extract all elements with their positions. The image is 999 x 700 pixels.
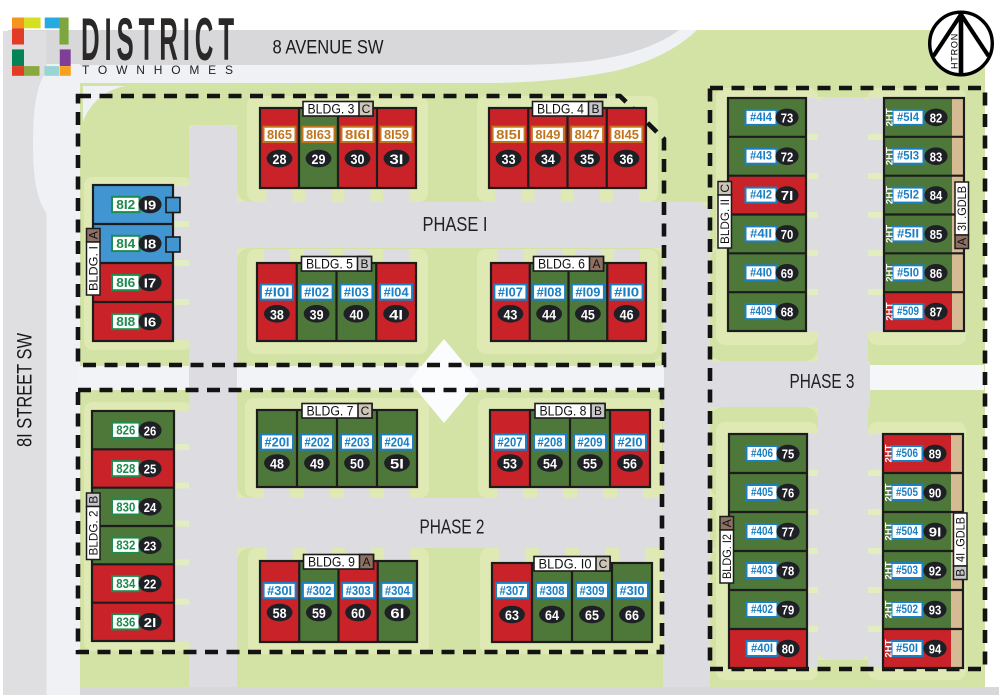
svg-text:#504: #504 xyxy=(896,526,919,538)
svg-text:TOWNHOMES: TOWNHOMES xyxy=(82,63,233,77)
svg-text:59: 59 xyxy=(312,605,326,621)
svg-text:70: 70 xyxy=(781,227,794,242)
svg-text:2HT: 2HT xyxy=(884,639,895,657)
svg-text:8I65: 8I65 xyxy=(267,128,292,142)
svg-text:BLDG. 3: BLDG. 3 xyxy=(308,102,355,117)
svg-text:#402: #402 xyxy=(751,604,773,616)
svg-text:8I8: 8I8 xyxy=(116,315,135,329)
svg-text:50: 50 xyxy=(350,456,364,472)
svg-text:79: 79 xyxy=(782,603,795,618)
svg-text:60: 60 xyxy=(351,605,365,621)
svg-text:8I4: 8I4 xyxy=(116,237,135,251)
svg-text:64: 64 xyxy=(545,607,559,623)
svg-text:#404: #404 xyxy=(751,526,774,538)
svg-text:#302: #302 xyxy=(306,584,331,598)
svg-text:#5I3: #5I3 xyxy=(897,151,919,163)
svg-text:38: 38 xyxy=(270,306,284,322)
svg-text:828: 828 xyxy=(116,462,135,476)
svg-text:23: 23 xyxy=(144,538,157,553)
svg-text:A: A xyxy=(955,238,969,246)
svg-text:43: 43 xyxy=(503,306,517,322)
svg-text:36: 36 xyxy=(619,151,633,167)
svg-text:85: 85 xyxy=(930,227,943,242)
svg-text:#30I: #30I xyxy=(267,584,292,598)
svg-text:B: B xyxy=(86,496,100,504)
svg-text:B: B xyxy=(360,257,368,271)
svg-text:BLDG. I: BLDG. I xyxy=(86,246,100,291)
svg-text:82: 82 xyxy=(930,111,943,126)
svg-text:#303: #303 xyxy=(346,584,371,598)
svg-text:89: 89 xyxy=(929,447,942,462)
svg-text:I6: I6 xyxy=(144,315,157,330)
svg-text:63: 63 xyxy=(505,607,519,623)
svg-text:84: 84 xyxy=(930,188,943,203)
svg-text:2HT: 2HT xyxy=(885,302,896,320)
svg-text:44: 44 xyxy=(542,306,556,322)
svg-text:#I02: #I02 xyxy=(304,286,329,300)
svg-text:2HT: 2HT xyxy=(884,561,895,579)
svg-text:28: 28 xyxy=(273,151,287,167)
svg-text:C: C xyxy=(362,102,371,116)
svg-text:#204: #204 xyxy=(385,436,410,450)
svg-text:94: 94 xyxy=(929,642,942,657)
svg-text:#I03: #I03 xyxy=(344,286,369,300)
svg-text:2HT: 2HT xyxy=(884,444,895,462)
svg-text:49: 49 xyxy=(310,456,324,472)
svg-text:5I: 5I xyxy=(390,456,404,472)
svg-text:BLDG. I0: BLDG. I0 xyxy=(539,557,592,572)
svg-text:826: 826 xyxy=(116,424,135,438)
svg-text:77: 77 xyxy=(782,525,795,540)
svg-text:A: A xyxy=(362,555,370,569)
svg-text:PHASE 3: PHASE 3 xyxy=(790,370,855,393)
svg-text:40: 40 xyxy=(349,306,363,322)
svg-text:BLDG. 5: BLDG. 5 xyxy=(306,257,353,272)
svg-text:#203: #203 xyxy=(345,436,370,450)
svg-text:BLDG. 8: BLDG. 8 xyxy=(540,404,587,419)
svg-text:#40I: #40I xyxy=(751,643,773,655)
svg-text:#208: #208 xyxy=(538,436,563,450)
svg-text:9I: 9I xyxy=(929,525,942,540)
svg-text:30: 30 xyxy=(351,151,365,167)
svg-text:93: 93 xyxy=(929,603,942,618)
svg-text:34: 34 xyxy=(541,151,555,167)
svg-text:4I: 4I xyxy=(389,306,403,322)
svg-text:2I: 2I xyxy=(144,615,157,630)
svg-text:I8: I8 xyxy=(144,237,157,252)
svg-text:#3I0: #3I0 xyxy=(620,584,645,598)
svg-text:55: 55 xyxy=(583,456,597,472)
svg-text:2HT: 2HT xyxy=(885,225,896,243)
svg-text:#307: #307 xyxy=(500,584,525,598)
svg-text:66: 66 xyxy=(625,607,639,623)
svg-text:#5I2: #5I2 xyxy=(897,190,919,202)
svg-text:72: 72 xyxy=(781,149,794,164)
svg-text:2HT: 2HT xyxy=(885,186,896,204)
svg-text:A: A xyxy=(592,257,600,271)
svg-text:76: 76 xyxy=(782,486,795,501)
svg-text:8I47: 8I47 xyxy=(575,128,600,142)
svg-text:24: 24 xyxy=(144,500,157,515)
svg-text:C: C xyxy=(599,557,608,571)
svg-text:B: B xyxy=(591,102,599,116)
svg-text:83: 83 xyxy=(930,149,943,164)
svg-text:80: 80 xyxy=(782,642,795,657)
svg-text:#309: #309 xyxy=(580,584,605,598)
svg-text:8I5I: 8I5I xyxy=(496,128,521,142)
svg-text:834: 834 xyxy=(116,577,135,591)
svg-text:33: 33 xyxy=(502,151,516,167)
svg-text:C: C xyxy=(718,184,732,193)
svg-text:39: 39 xyxy=(310,306,324,322)
svg-text:8I STREET SW: 8I STREET SW xyxy=(14,333,37,447)
svg-text:2HT: 2HT xyxy=(884,522,895,540)
svg-text:46: 46 xyxy=(620,306,634,322)
svg-text:#4I3: #4I3 xyxy=(750,151,772,163)
svg-text:#308: #308 xyxy=(540,584,565,598)
svg-text:BLDG. 7: BLDG. 7 xyxy=(307,404,354,419)
svg-text:B: B xyxy=(594,404,602,418)
svg-text:#207: #207 xyxy=(498,436,523,450)
svg-text:8I59: 8I59 xyxy=(384,128,409,142)
svg-text:832: 832 xyxy=(116,539,135,553)
svg-text:#406: #406 xyxy=(751,448,773,460)
svg-text:#5I0: #5I0 xyxy=(897,267,919,279)
svg-text:#5II: #5II xyxy=(897,228,919,240)
svg-text:#4I4: #4I4 xyxy=(750,112,773,124)
svg-text:I9: I9 xyxy=(144,198,157,213)
svg-text:#50I: #50I xyxy=(896,643,918,655)
svg-text:8I2: 8I2 xyxy=(116,198,135,212)
svg-text:75: 75 xyxy=(782,447,795,462)
svg-text:830: 830 xyxy=(116,500,135,514)
svg-text:BLDG. 6: BLDG. 6 xyxy=(538,257,585,272)
svg-text:8I49: 8I49 xyxy=(535,128,560,142)
svg-text:#405: #405 xyxy=(751,487,774,499)
svg-text:#202: #202 xyxy=(305,436,330,450)
svg-text:54: 54 xyxy=(543,456,557,472)
svg-text:A: A xyxy=(720,519,734,527)
svg-text:48: 48 xyxy=(270,456,284,472)
svg-text:#502: #502 xyxy=(896,604,918,616)
svg-text:8 AVENUE SW: 8 AVENUE SW xyxy=(273,38,384,59)
svg-text:BLDG. I2: BLDG. I2 xyxy=(720,534,734,579)
svg-text:#304: #304 xyxy=(385,584,410,598)
svg-text:2HT: 2HT xyxy=(884,600,895,618)
svg-text:#403: #403 xyxy=(751,565,773,577)
svg-text:6I: 6I xyxy=(390,605,404,621)
svg-text:#I08: #I08 xyxy=(537,286,562,300)
svg-text:2HT: 2HT xyxy=(885,108,896,126)
svg-text:BLDG. 9: BLDG. 9 xyxy=(308,555,355,570)
svg-text:A: A xyxy=(86,231,100,239)
svg-text:2HT: 2HT xyxy=(884,483,895,501)
svg-text:69: 69 xyxy=(781,266,794,281)
svg-text:35: 35 xyxy=(580,151,594,167)
svg-text:BLDG. 2: BLDG. 2 xyxy=(86,510,100,555)
svg-text:8I45: 8I45 xyxy=(614,128,639,142)
svg-text:#2I0: #2I0 xyxy=(618,436,643,450)
svg-text:#506: #506 xyxy=(896,448,918,460)
svg-text:26: 26 xyxy=(144,423,157,438)
svg-text:45: 45 xyxy=(581,306,595,322)
svg-text:#509: #509 xyxy=(897,306,919,318)
svg-text:B: B xyxy=(953,569,967,577)
svg-text:BLDG. II: BLDG. II xyxy=(718,199,732,244)
svg-text:#505: #505 xyxy=(896,487,919,499)
svg-text:7I: 7I xyxy=(781,188,794,203)
svg-text:#I09: #I09 xyxy=(575,286,600,300)
svg-text:25: 25 xyxy=(144,462,157,477)
svg-text:8I63: 8I63 xyxy=(306,128,331,142)
svg-text:#I0I: #I0I xyxy=(264,286,289,300)
svg-text:#4I0: #4I0 xyxy=(750,267,772,279)
svg-text:86: 86 xyxy=(930,266,943,281)
svg-text:3I .GDLB: 3I .GDLB xyxy=(955,186,969,231)
svg-text:87: 87 xyxy=(930,305,943,320)
svg-text:22: 22 xyxy=(144,577,157,592)
svg-text:90: 90 xyxy=(929,486,942,501)
svg-text:58: 58 xyxy=(273,605,287,621)
svg-text:92: 92 xyxy=(929,564,942,579)
svg-text:8I6I: 8I6I xyxy=(345,128,370,142)
svg-text:53: 53 xyxy=(503,456,517,472)
svg-text:65: 65 xyxy=(585,607,599,623)
svg-text:I7: I7 xyxy=(144,276,157,291)
svg-text:C: C xyxy=(361,404,370,418)
svg-text:29: 29 xyxy=(312,151,326,167)
svg-text:3I: 3I xyxy=(390,151,404,167)
svg-text:#409: #409 xyxy=(750,306,772,318)
svg-text:PHASE 2: PHASE 2 xyxy=(420,516,485,539)
svg-text:8I6: 8I6 xyxy=(116,276,135,290)
svg-text:56: 56 xyxy=(623,456,637,472)
svg-text:PHASE I: PHASE I xyxy=(423,213,488,236)
svg-text:#209: #209 xyxy=(578,436,603,450)
svg-text:#4I2: #4I2 xyxy=(750,190,772,202)
svg-text:78: 78 xyxy=(782,564,795,579)
svg-text:73: 73 xyxy=(781,111,794,126)
svg-text:#5I4: #5I4 xyxy=(897,112,920,124)
svg-text:4I .GDLB: 4I .GDLB xyxy=(953,517,967,562)
svg-text:#20I: #20I xyxy=(265,436,290,450)
svg-text:2HT: 2HT xyxy=(885,147,896,165)
svg-text:68: 68 xyxy=(781,305,794,320)
svg-text:2HT: 2HT xyxy=(885,264,896,282)
svg-text:836: 836 xyxy=(116,615,135,629)
svg-text:#I07: #I07 xyxy=(498,286,523,300)
svg-text:#503: #503 xyxy=(896,565,918,577)
svg-text:#4II: #4II xyxy=(750,228,772,240)
svg-text:#II0: #II0 xyxy=(614,286,639,300)
svg-text:HTRON: HTRON xyxy=(950,33,960,69)
svg-text:#I04: #I04 xyxy=(384,286,409,300)
svg-text:BLDG. 4: BLDG. 4 xyxy=(537,102,584,117)
